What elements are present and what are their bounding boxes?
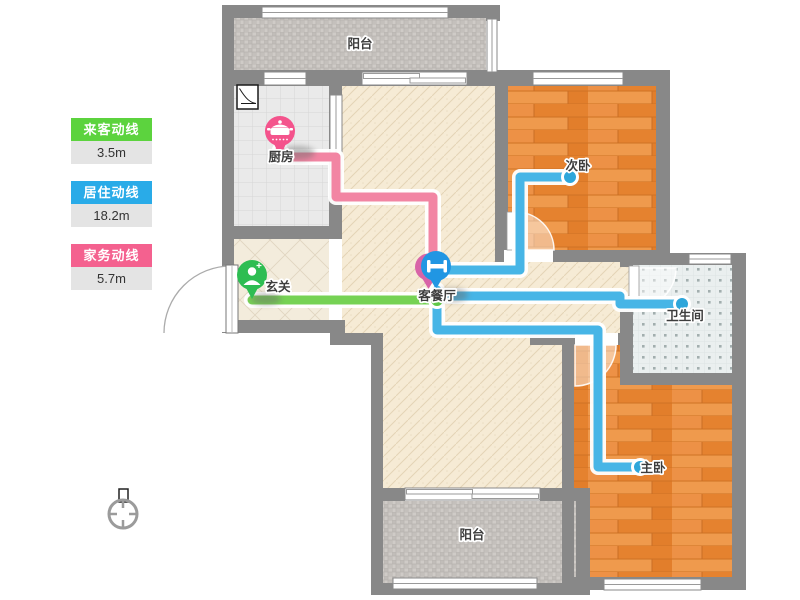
wall bbox=[371, 488, 405, 501]
entry-door bbox=[164, 265, 238, 333]
living-floor-lower bbox=[371, 345, 576, 488]
wall bbox=[495, 86, 508, 262]
window bbox=[393, 578, 537, 589]
room-label-master: 主卧 bbox=[640, 460, 666, 475]
room-label-bathroom: 卫生间 bbox=[666, 308, 704, 323]
window bbox=[264, 72, 306, 85]
legend-living-label: 居住动线 bbox=[71, 181, 152, 204]
window bbox=[262, 7, 448, 18]
compass-icon bbox=[109, 489, 137, 528]
wall bbox=[620, 253, 633, 267]
wall bbox=[222, 86, 234, 268]
legend-chore-value: 5.7m bbox=[71, 267, 152, 290]
room-label-entry: 玄关 bbox=[265, 279, 291, 294]
wall bbox=[234, 226, 342, 239]
legend-guest-value: 3.5m bbox=[71, 141, 152, 164]
wall bbox=[656, 70, 670, 262]
shadow bbox=[251, 293, 281, 305]
legend-chore-group: 家务动线 5.7m bbox=[71, 244, 152, 290]
room-label-kitchen: 厨房 bbox=[268, 149, 293, 164]
wall bbox=[222, 320, 345, 333]
legend: 来客动线 3.5m 居住动线 18.2m 家务动线 5.7m bbox=[71, 118, 152, 307]
room-label-balcony-bottom: 阳台 bbox=[459, 527, 484, 542]
kitchen-door-icon bbox=[237, 85, 258, 109]
sliding-door bbox=[405, 488, 540, 500]
legend-guest-group: 来客动线 3.5m bbox=[71, 118, 152, 164]
legend-living-group: 居住动线 18.2m bbox=[71, 181, 152, 227]
wall bbox=[371, 345, 383, 595]
wall bbox=[330, 333, 383, 345]
room-label-bedroom2: 次卧 bbox=[565, 158, 591, 173]
room-label-balcony-top: 阳台 bbox=[347, 36, 372, 51]
window bbox=[604, 579, 701, 590]
wall bbox=[732, 253, 746, 590]
floorplan-page: 阳台 厨房 玄关 客餐厅 次卧 卫生间 主卧 阳台 来客动线 3.5m 居住动线… bbox=[0, 0, 800, 600]
legend-chore-label: 家务动线 bbox=[71, 244, 152, 267]
wall bbox=[620, 310, 633, 385]
wall bbox=[620, 373, 732, 385]
room-label-living: 客餐厅 bbox=[417, 288, 456, 303]
sliding-door bbox=[362, 72, 467, 85]
window bbox=[487, 19, 497, 72]
window bbox=[689, 254, 731, 264]
wall bbox=[562, 345, 574, 577]
balcony-bottom-floor bbox=[383, 501, 576, 583]
legend-living-value: 18.2m bbox=[71, 204, 152, 227]
window bbox=[533, 72, 623, 85]
wall bbox=[618, 333, 633, 345]
legend-guest-label: 来客动线 bbox=[71, 118, 152, 141]
